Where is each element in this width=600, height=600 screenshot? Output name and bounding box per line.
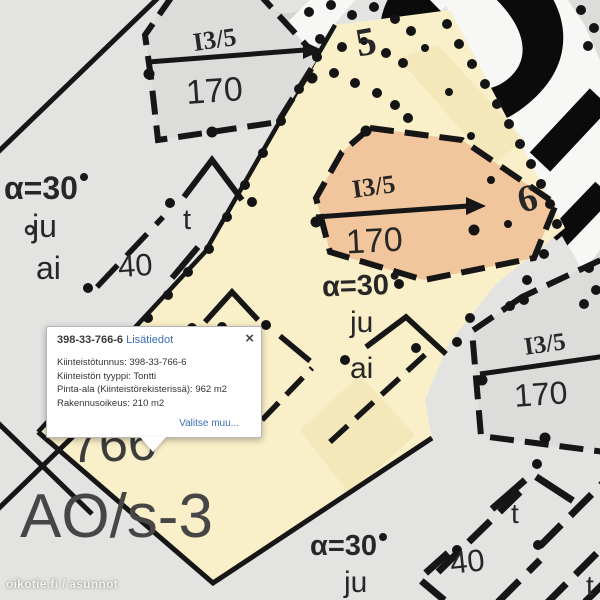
- property-type-row: Kiinteistön tyyppi: Tontti: [57, 370, 251, 384]
- plan-label-ai: ai: [350, 354, 373, 384]
- plan-label-area: 170: [513, 376, 568, 412]
- plan-label-building-ratio: I3/5: [522, 329, 567, 360]
- degree-dot: [379, 533, 387, 541]
- plan-label-t: t: [511, 500, 519, 528]
- popup-action-row: Valitse muu...: [57, 413, 239, 431]
- property-id: 398-33-766-6: [57, 334, 123, 346]
- plan-label-ai: ai: [36, 252, 61, 284]
- plan-label-roof-angle: α=30: [310, 532, 387, 561]
- lisatiedot-link[interactable]: Lisätiedot: [126, 334, 173, 346]
- plan-label-ju: ju: [344, 568, 367, 598]
- popup-body: Kiinteistötunnus: 398-33-766-6 Kiinteist…: [57, 356, 251, 410]
- popup-title-row: 398-33-766-6 Lisätiedot: [57, 334, 251, 346]
- plan-label-roof-angle: α=30: [322, 271, 400, 303]
- plan-label-ju: ju: [32, 210, 57, 242]
- degree-dot: [80, 173, 88, 181]
- plan-label-40: 40: [117, 249, 154, 282]
- map-viewport[interactable]: OK: [0, 0, 600, 600]
- plan-label-zoning-ao-s3: AO/s-3: [20, 486, 213, 548]
- popup-pointer: [140, 437, 166, 452]
- degree-dot: [391, 272, 399, 280]
- site-watermark: oikotie.fi / asunnot: [6, 577, 118, 591]
- plan-label-ju: ju: [350, 308, 373, 338]
- close-icon[interactable]: ×: [245, 331, 254, 346]
- valitse-muu-link[interactable]: Valitse muu...: [179, 418, 239, 429]
- property-info-popup: 398-33-766-6 Lisätiedot × Kiinteistötunn…: [46, 326, 262, 438]
- plan-label-roof-angle: α=30: [4, 172, 88, 204]
- property-id-row: Kiinteistötunnus: 398-33-766-6: [57, 356, 251, 370]
- building-rights-row: Rakennusoikeus: 210 m2: [57, 397, 251, 411]
- plan-label-area: 170: [185, 72, 244, 110]
- plan-label-building-ratio: I3/5: [191, 24, 238, 56]
- plan-label-40: 40: [448, 544, 486, 578]
- plan-label-area: 170: [345, 223, 403, 260]
- plan-label-building-ratio: I3/5: [350, 171, 397, 203]
- plan-label-t: t: [183, 206, 191, 235]
- property-area-row: Pinta-ala (Kiinteistörekisterissä): 962 …: [57, 383, 251, 397]
- plan-label-t: t: [586, 572, 594, 600]
